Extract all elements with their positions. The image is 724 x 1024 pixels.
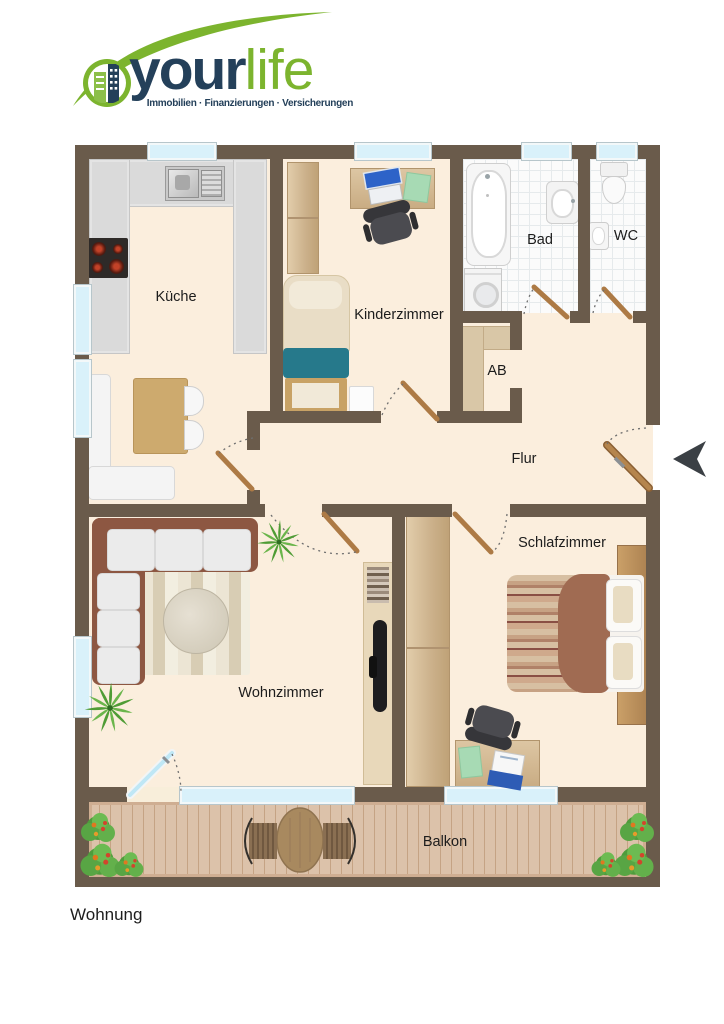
wall	[510, 388, 522, 411]
dining-table	[133, 378, 188, 454]
wall	[570, 311, 590, 323]
window	[74, 285, 91, 354]
sofa-cushion	[203, 529, 251, 571]
bedroom-wardrobe	[406, 513, 450, 787]
sofa-cushion	[155, 529, 203, 571]
floorplan-page: yourlife Immobilien · Finanzierungen · V…	[0, 0, 724, 1024]
window	[445, 787, 557, 804]
pillow	[606, 579, 642, 632]
window	[74, 637, 91, 717]
book-stack	[367, 567, 389, 603]
plan-title: Wohnung	[70, 905, 142, 925]
room-label-ab: AB	[487, 363, 506, 379]
balcony-deck	[89, 802, 646, 877]
wc-sink	[588, 222, 609, 250]
window	[74, 360, 91, 437]
window	[522, 143, 571, 160]
dining-bench-horizontal	[88, 466, 175, 500]
window	[148, 143, 216, 160]
bathtub	[466, 163, 511, 266]
wall	[392, 504, 405, 787]
kids-bed	[283, 275, 350, 413]
entrance-arrow-icon	[673, 441, 706, 477]
room-label-wohnzimmer: Wohnzimmer	[238, 685, 323, 701]
room-label-bad: Bad	[527, 232, 553, 248]
window	[180, 787, 354, 804]
logo-word-your: your	[129, 38, 245, 102]
wall	[578, 159, 590, 311]
wall	[633, 311, 660, 323]
wall	[646, 490, 660, 887]
stove-cooktop	[88, 238, 128, 278]
window	[597, 143, 637, 160]
room-label-wc: WC	[614, 228, 638, 244]
logo-house-icon	[83, 59, 131, 107]
wall	[437, 411, 522, 423]
sofa-cushion	[107, 529, 155, 571]
wall	[646, 145, 660, 425]
sofa-cushion	[97, 610, 140, 647]
wall	[510, 323, 522, 350]
sofa-cushion	[97, 573, 140, 610]
wall	[247, 423, 260, 450]
tv-cabinet	[363, 562, 395, 785]
room-label-schlafzimmer: Schlafzimmer	[518, 535, 606, 551]
wall	[75, 877, 660, 887]
kitchen-sink	[165, 166, 225, 201]
double-bed	[507, 575, 644, 692]
wall	[450, 311, 522, 323]
wall	[270, 159, 283, 423]
wall	[510, 504, 660, 517]
kids-nightstand	[349, 386, 374, 414]
sofa-cushion	[97, 647, 140, 684]
bedroom-desk	[455, 740, 540, 788]
room-label-kueche: Küche	[155, 289, 196, 305]
room-label-kinderzimmer: Kinderzimmer	[354, 307, 443, 323]
coffee-table	[163, 588, 229, 654]
wall	[322, 504, 452, 517]
window	[355, 143, 431, 160]
wall	[247, 411, 381, 423]
logo-word-life: life	[245, 38, 314, 102]
room-label-balkon: Balkon	[423, 834, 467, 850]
kids-wardrobe	[287, 162, 319, 274]
pillow	[606, 636, 642, 689]
wall	[450, 159, 463, 411]
kitchen-counter-right	[233, 159, 267, 354]
room-label-flur: Flur	[512, 451, 537, 467]
washing-machine	[464, 268, 502, 314]
kids-desk	[350, 168, 435, 209]
bathroom-sink	[546, 181, 579, 224]
balcony-door-gap	[127, 787, 182, 802]
toilet	[600, 162, 628, 204]
wall	[80, 504, 265, 517]
logo-wordmark: yourlife	[129, 42, 313, 98]
logo-tagline: Immobilien · Finanzierungen · Versicheru…	[129, 98, 353, 109]
